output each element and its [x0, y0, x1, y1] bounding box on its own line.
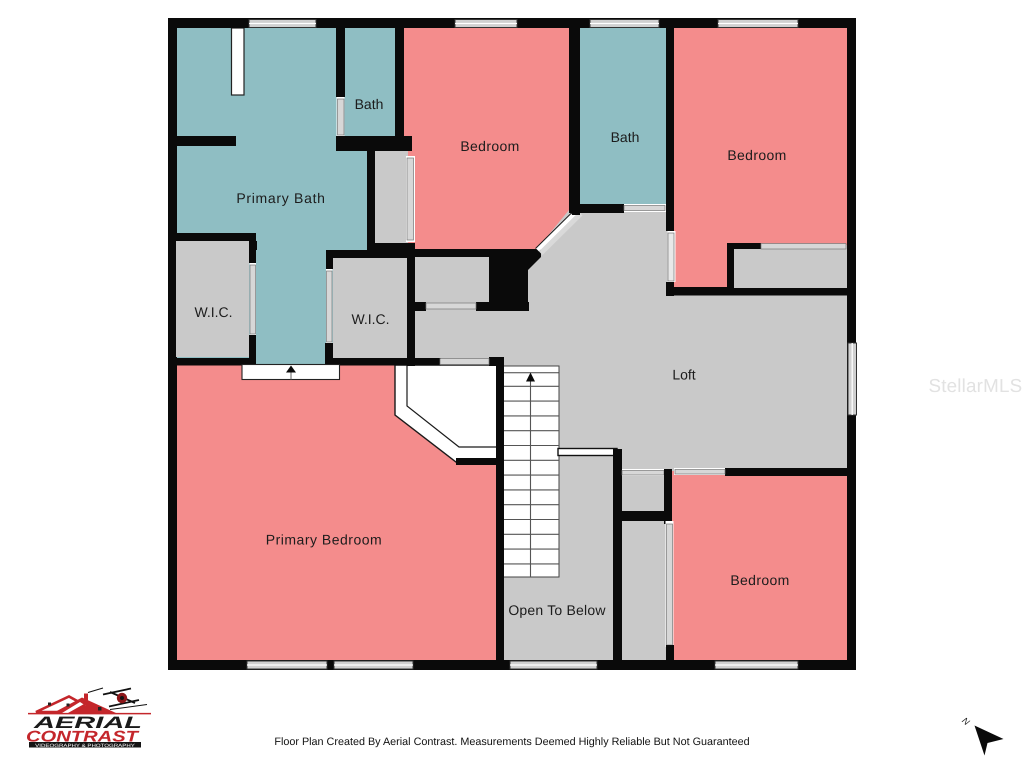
svg-text:Floor Plan Created By Aerial C: Floor Plan Created By Aerial Contrast. M… [274, 736, 749, 748]
svg-text:VIDEOGRAPHY & PHOTOGRAPHY: VIDEOGRAPHY & PHOTOGRAPHY [35, 743, 135, 748]
svg-text:Loft: Loft [672, 366, 695, 382]
svg-text:Open To Below: Open To Below [508, 602, 606, 618]
svg-text:StellarMLS: StellarMLS [929, 375, 1023, 396]
svg-text:Bath: Bath [611, 129, 640, 145]
svg-text:Bedroom: Bedroom [730, 572, 789, 588]
svg-text:Bedroom: Bedroom [460, 138, 519, 154]
svg-text:Bath: Bath [355, 96, 384, 112]
svg-text:Bedroom: Bedroom [727, 147, 786, 163]
svg-text:W.I.C.: W.I.C. [194, 304, 232, 320]
svg-text:Primary Bath: Primary Bath [236, 190, 325, 206]
svg-text:Primary Bedroom: Primary Bedroom [266, 532, 382, 548]
svg-text:W.I.C.: W.I.C. [351, 311, 389, 327]
